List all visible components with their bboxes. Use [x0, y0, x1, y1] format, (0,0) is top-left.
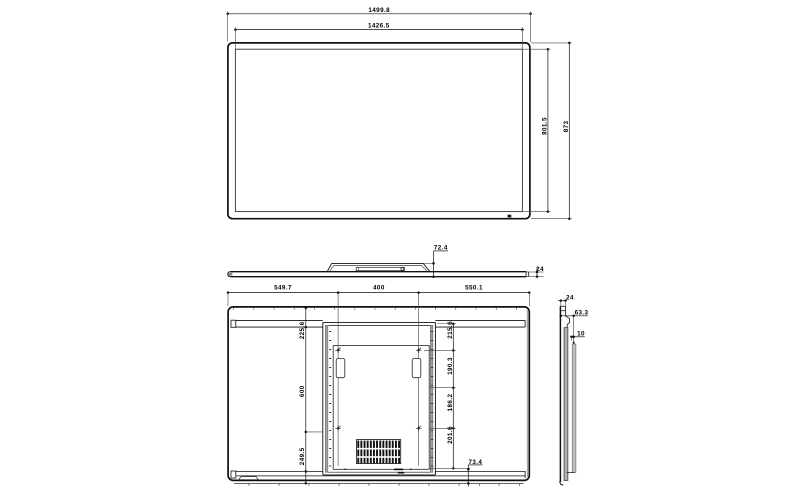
svg-text:186.2: 186.2	[447, 394, 454, 412]
svg-text:550.1: 550.1	[465, 284, 483, 291]
svg-text:201.6: 201.6	[447, 426, 454, 444]
svg-text:10: 10	[577, 331, 585, 338]
svg-text:873: 873	[563, 120, 570, 132]
svg-text:72.4: 72.4	[434, 245, 448, 252]
svg-text:1426.5: 1426.5	[368, 23, 390, 30]
svg-text:249.5: 249.5	[299, 447, 306, 465]
svg-text:225.6: 225.6	[299, 321, 306, 339]
svg-text:400: 400	[373, 285, 385, 292]
svg-text:1499.8: 1499.8	[368, 7, 390, 14]
svg-text:549.7: 549.7	[274, 284, 292, 291]
svg-text:73.4: 73.4	[468, 459, 482, 466]
svg-text:63.3: 63.3	[575, 310, 589, 317]
svg-text:24: 24	[566, 295, 574, 302]
svg-text:24: 24	[536, 266, 544, 273]
svg-text:190.3: 190.3	[447, 357, 454, 375]
svg-text:801.5: 801.5	[542, 117, 549, 135]
svg-text:600: 600	[299, 385, 306, 397]
svg-text:215.6: 215.6	[447, 321, 454, 339]
